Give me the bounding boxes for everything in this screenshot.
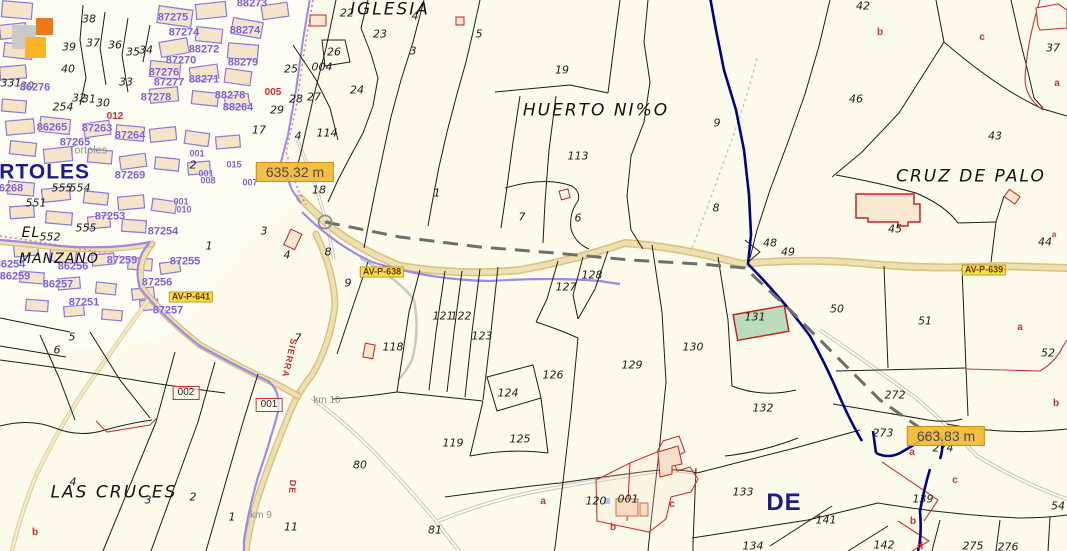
urban-block-label: 86268 [0,184,23,195]
parcel-number: 43 [988,131,1002,142]
subparcel-letter: c [979,33,985,43]
parcel-number: 7 [519,212,526,223]
parcel-number: 17 [252,125,266,136]
subparcel-letter: b [32,528,38,538]
km-marker-10: km 10 [313,396,340,406]
parcel-number: 2 [190,160,197,171]
town-name-navy: ORTOLES [0,162,90,183]
urban-block-label: 86276 [20,83,51,94]
subparcel-letter: c [952,476,958,486]
parcel-number: 80 [353,460,367,471]
parcel-number: 133 [733,487,754,498]
urban-block-label: 87253 [95,212,126,223]
parcel-number: 552 [40,232,61,243]
parcel-number: 554 [70,183,91,194]
parcel-number: 1 [229,512,236,523]
subparcel-letter: a [1054,79,1060,89]
urban-block-label: 87259 [107,256,138,267]
parcel-number: 31 [82,94,96,105]
subparcel-letter: 005 [265,88,282,98]
urban-block-label: 87263 [82,124,113,135]
urban-block-label: 86265 [37,123,68,134]
parcel-number: 134 [743,541,764,551]
subparcel-letter: 012 [107,112,124,122]
municipal-boundary [710,0,942,551]
urban-block-label: 88264 [223,103,254,114]
farm-building-45 [856,194,920,226]
parcel-number: 40 [61,64,75,75]
parcel-number: 3 [261,226,268,237]
parcel-number: 1 [434,188,441,199]
parcel-number: 23 [373,29,387,40]
parcel-number: 44 [1038,237,1052,248]
parcel-number: 9 [714,118,721,129]
urban-small-label: 010 [176,206,191,215]
parcel-number: 39 [62,42,76,53]
parcel-number: 38 [82,14,96,25]
parcel-number: 37 [86,38,100,49]
parcel-number: 34 [139,45,153,56]
parcel-number: 35 [126,47,140,58]
place-label-huerto-nino: HUERTO NI%O [523,103,669,120]
subparcel-letter: a [909,448,915,458]
urban-block-label: 87269 [115,171,146,182]
parcel-number: 129 [622,360,643,371]
parcel-number: 52 [1041,348,1055,359]
urban-block-label: 88279 [228,58,259,69]
parcel-number: 139 [913,494,934,505]
parcel-number: 29 [270,105,284,116]
tile-amber [25,37,46,58]
parcel-number: 33 [119,77,133,88]
subparcel-letter: b [877,28,883,38]
urban-block-label: 87255 [170,257,201,268]
parcel-number: 126 [543,370,564,381]
parcel-number: 18 [312,185,326,196]
parcel-number: 25 [284,64,298,75]
place-label-las-cruces: LAS CRUCES [51,485,178,502]
parcel-number: 124 [498,388,519,399]
subparcel-letter: c [669,500,675,510]
urban-block-label: 87254 [148,227,179,238]
parcel-number: 004 [312,62,333,73]
subparcel-letter: b [1053,399,1059,409]
parcel-number: 275 [963,541,984,551]
urban-block-label: 86259 [0,272,30,283]
parcel-number: 9 [345,278,352,289]
parcel-number: 132 [753,403,774,414]
parcel-number: 272 [885,390,906,401]
urban-block-label: 87257 [153,306,184,317]
parcel-number: 6 [54,345,61,356]
cadastral-map-viewport[interactable]: 3839373635344033323130254331302528292726… [0,0,1067,551]
parcel-number: 6 [575,213,582,224]
parcel-number: 54 [1051,501,1065,512]
parcel-number: 1 [206,241,213,252]
parcel-number: 11 [284,522,298,533]
boxed-label-002: 002 [173,386,200,400]
town-name-gray: Tortoles [69,146,108,157]
parcel-number: 4 [295,131,302,142]
urban-block-label: 87277 [154,78,185,89]
urban-block-label: 88278 [215,91,246,102]
scale-name-de: DE [766,491,801,515]
subparcel-letter: a [1017,323,1023,333]
road-label-av-p-639: AV-P-639 [962,265,1006,276]
urban-block-label: 88273 [237,0,268,10]
parcel-number: 26 [327,47,341,58]
parcel-number: 19 [555,65,569,76]
subparcel-letter: b [910,517,916,527]
parcel-number: 113 [568,151,589,162]
parcel-number: 46 [849,94,863,105]
urban-block-label: 88274 [230,26,261,37]
parcel-number: 30 [96,98,110,109]
parcel-number: 37 [1046,43,1060,54]
urban-small-label: 001 [189,150,204,159]
parcel-number: 36 [108,40,122,51]
parcel-number: 128 [582,270,603,281]
urban-block-label: 87278 [141,93,172,104]
urban-block-label: 87251 [69,298,100,309]
parcel-number: 276 [998,542,1019,551]
urban-small-label: 015 [226,161,241,170]
subparcel-letter: d [917,542,923,551]
tile-orange [36,18,53,35]
urban-small-label: 008 [200,177,215,186]
boxed-label-001: 001 [256,398,283,412]
km-marker-9: km 9 [250,511,272,521]
parcel-number: 131 [745,312,766,323]
parcel-number: 42 [856,1,870,12]
parcel-number: 142 [874,540,895,551]
parcel-number: 551 [26,198,47,209]
measurement-label-end: 663.83 m [907,426,985,446]
subparcel-letter: a [1052,231,1056,239]
subparcel-letter: b [610,523,616,533]
parcel-number: 141 [816,515,837,526]
urban-block-label: 87256 [142,278,173,289]
parcel-number: 118 [383,342,404,353]
parcel-number: 3 [410,46,417,57]
parcel-number: 48 [763,238,777,249]
urban-block-label: 87274 [169,28,200,39]
parcel-number: 2 [190,492,197,503]
parcel-number: 127 [556,282,577,293]
parcel-number: 001 [618,494,639,505]
parcel-number: 81 [428,525,442,536]
parcel-number: 123 [472,331,493,342]
parcel-number: 122 [451,311,472,322]
parcel-number: 331 [1,78,22,89]
place-label-el: EL [22,226,41,240]
road-label-av-p-641: AV-P-641 [169,292,213,303]
measurement-label-start: 635.32 m [256,162,334,182]
urban-block-label: 87275 [158,13,189,24]
parcel-number: 120 [586,496,607,507]
parcel-number: 45 [888,224,902,235]
parcel-number: 24 [350,85,364,96]
parcel-number: 50 [830,304,844,315]
measurement-line [319,216,944,437]
parcel-number: 273 [873,428,894,439]
parcel-number: 114 [317,128,338,139]
urban-block-label: 86257 [43,280,74,291]
parcel-number: 51 [918,316,932,327]
urban-block-label: 88271 [189,75,220,86]
parcel-number: 125 [510,434,531,445]
urban-block-label: 87264 [115,131,146,142]
parcel-number: 555 [76,223,97,234]
parcel-number: 49 [781,247,795,258]
parcel-number: 28 [289,94,303,105]
parcel-number: 8 [713,203,720,214]
parcel-number: 5 [476,29,483,40]
place-label-iglesia: IGLESIA [350,2,430,19]
parcel-number: 4 [284,250,291,261]
place-label-manzano: MANZANO [19,252,99,266]
parcel-number: 254 [53,102,74,113]
parcel-number: 5 [69,332,76,343]
place-label-cruz-de-palo: CRUZ DE PALO [896,169,1046,186]
subparcel-letter: a [540,497,546,507]
parcel-number: 119 [443,438,464,449]
parcel-number: 8 [325,247,332,258]
urban-block-label: 87270 [166,56,197,67]
street-label-de: DE [287,479,297,494]
road-label-av-p-638: AV-P-638 [360,267,404,278]
parcel-number: 27 [307,92,321,103]
parcel-number: 130 [683,342,704,353]
